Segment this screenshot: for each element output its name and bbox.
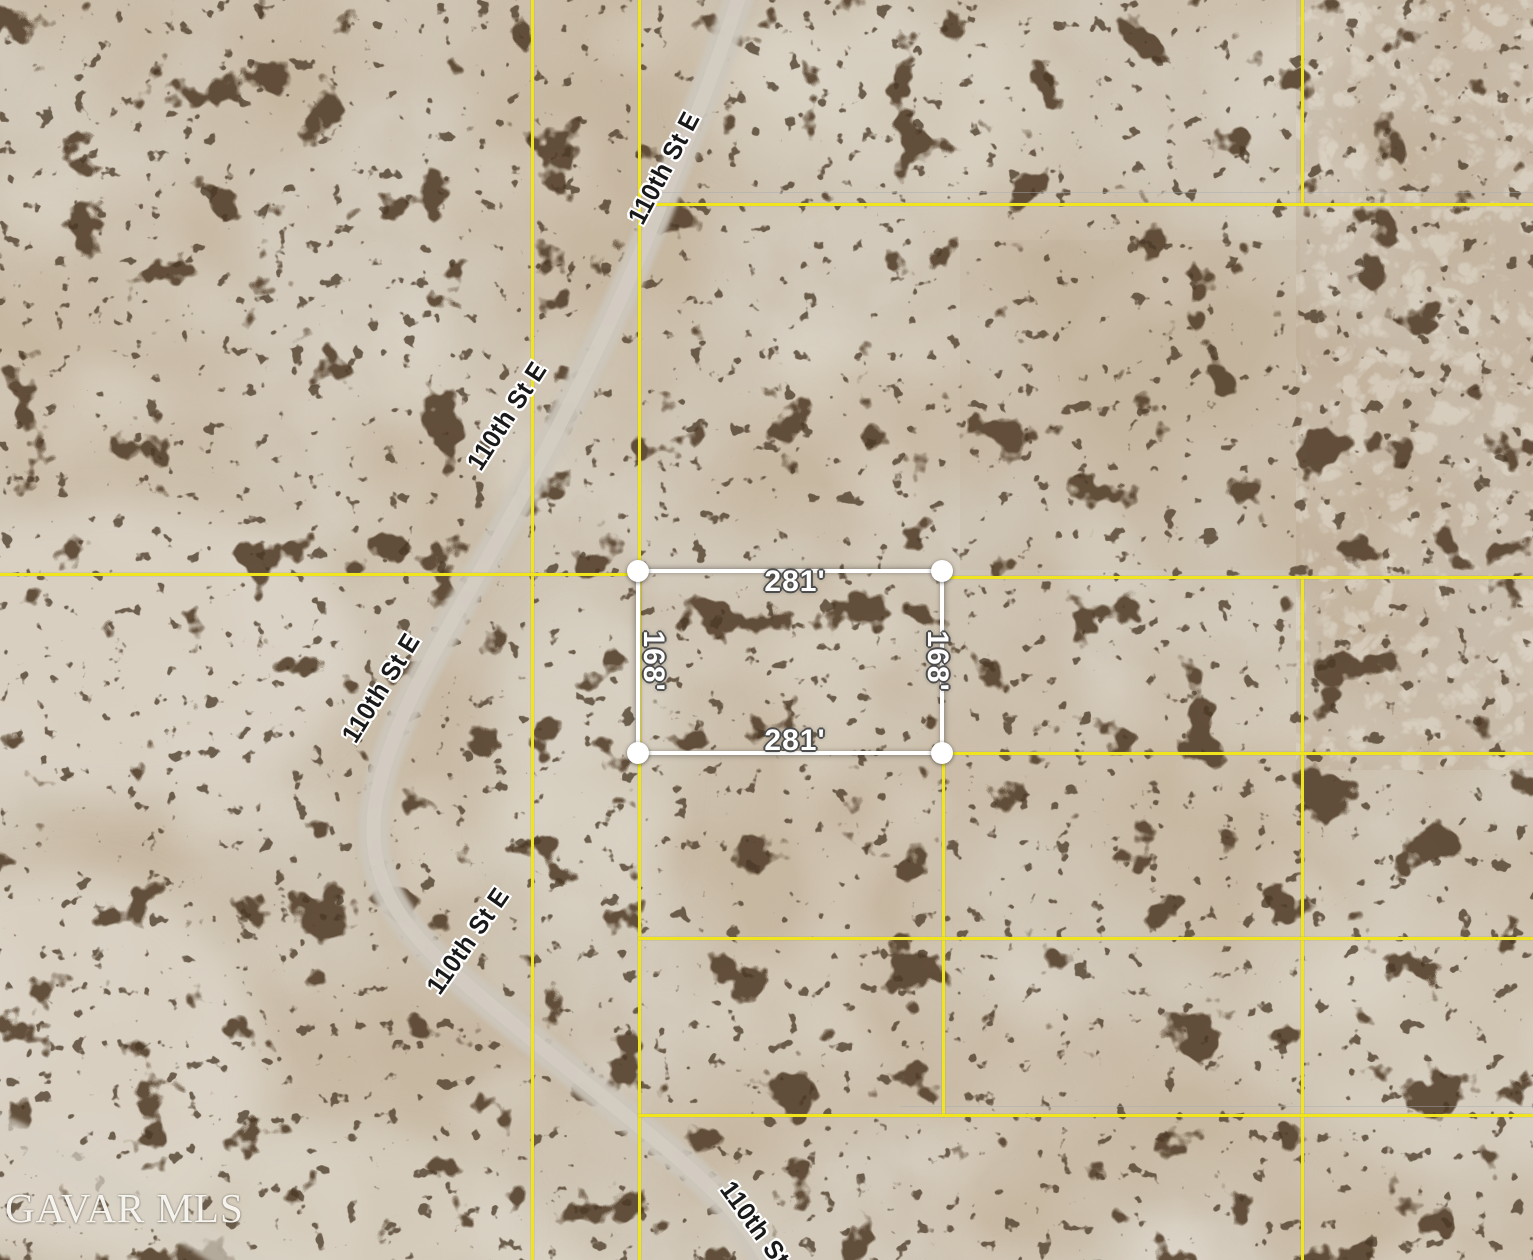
grid-line-horizontal bbox=[638, 937, 1533, 940]
grid-line-vertical bbox=[942, 753, 945, 1117]
faint-section-line bbox=[900, 1106, 1533, 1107]
satellite-parcel-map: 110th St E 110th St E 110th St E 110th S… bbox=[0, 0, 1533, 1260]
parcel-corner-marker bbox=[627, 560, 649, 582]
faint-section-line bbox=[638, 192, 1533, 193]
grid-line-horizontal bbox=[638, 203, 1533, 206]
grid-line-horizontal bbox=[638, 1114, 1533, 1117]
grid-line-horizontal bbox=[942, 576, 1533, 579]
grid-line-vertical bbox=[531, 0, 534, 1260]
parcel-corner-marker bbox=[931, 742, 953, 764]
grid-line-vertical bbox=[1301, 577, 1304, 1260]
parcel-corner-marker bbox=[627, 742, 649, 764]
mls-watermark: GAVAR MLS bbox=[5, 1184, 244, 1232]
grid-line-horizontal bbox=[0, 573, 640, 576]
parcel-dimension-right: 168' bbox=[920, 630, 954, 691]
grid-line-vertical bbox=[1301, 0, 1304, 205]
parcel-dimension-top: 281' bbox=[764, 565, 825, 599]
parcel-dimension-bottom: 281' bbox=[764, 724, 825, 758]
grid-line-horizontal bbox=[942, 752, 1533, 755]
parcel-corner-marker bbox=[931, 560, 953, 582]
parcel-dimension-left: 168' bbox=[636, 630, 670, 691]
